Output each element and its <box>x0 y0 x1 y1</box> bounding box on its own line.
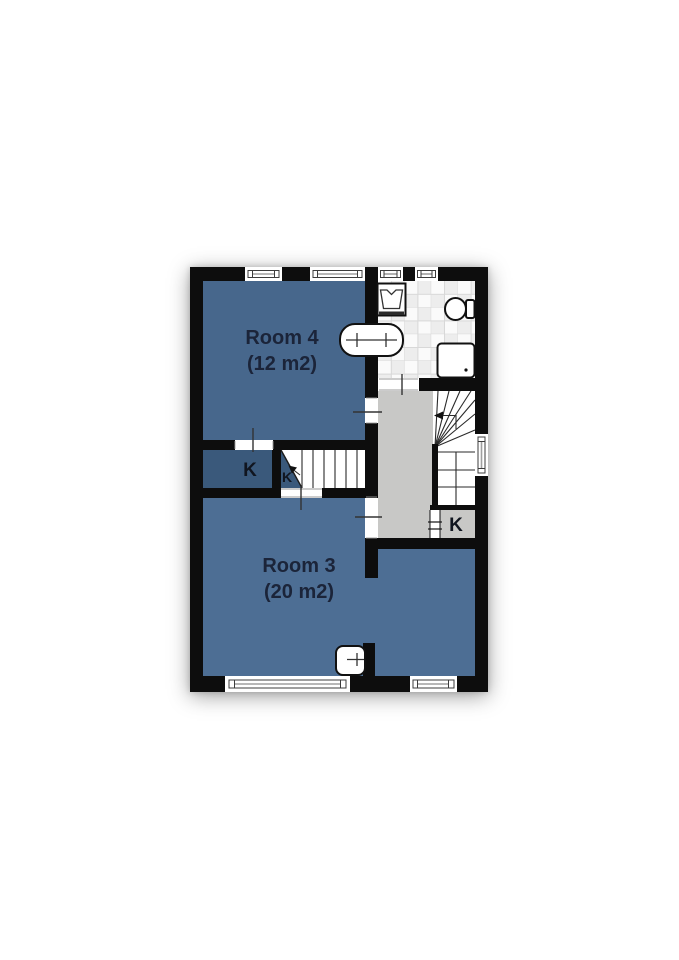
shower-icon <box>438 344 475 378</box>
washing-machine-icon <box>378 284 406 316</box>
closet-left-label: K <box>243 460 257 481</box>
closet-left-floor <box>203 450 272 488</box>
window <box>310 267 365 281</box>
wall-segment <box>365 549 378 578</box>
wall-segment <box>365 538 475 549</box>
window <box>225 676 350 692</box>
room4-name-label: Room 4 <box>245 327 319 349</box>
stair-stringer-wall <box>432 444 438 510</box>
wall-segment <box>475 267 488 692</box>
window <box>245 267 282 281</box>
window <box>415 267 438 281</box>
window <box>475 434 488 476</box>
window <box>410 676 457 692</box>
wall-segment <box>273 440 378 450</box>
wall-segment <box>190 267 203 692</box>
staircase-upper <box>432 391 475 510</box>
closet-understairs-label: K <box>282 469 292 485</box>
wall-segment <box>430 505 475 510</box>
wall-segment <box>419 378 475 391</box>
door-opening <box>430 510 440 538</box>
wall-segment <box>203 440 235 450</box>
room3-area-label: (20 m2) <box>264 581 334 603</box>
wall-segment <box>272 450 281 488</box>
floor-plan-drawing: Room 4 (12 m2) Room 3 (20 m2) K K K <box>190 267 488 692</box>
double-sink-icon <box>340 324 403 356</box>
toilet-icon <box>445 298 475 320</box>
room3-name-label: Room 3 <box>262 555 335 577</box>
floor-plan: Room 4 (12 m2) Room 3 (20 m2) K K K <box>190 267 488 692</box>
wall-segment <box>322 488 378 498</box>
hand-sink-icon <box>336 646 365 675</box>
closet-landing-label: K <box>449 515 463 536</box>
wall-segment <box>365 423 378 497</box>
wall-segment <box>203 488 281 498</box>
window <box>378 267 403 281</box>
floor-plan-page: Room 4 (12 m2) Room 3 (20 m2) K K K <box>0 0 679 960</box>
room4-area-label: (12 m2) <box>247 353 317 375</box>
